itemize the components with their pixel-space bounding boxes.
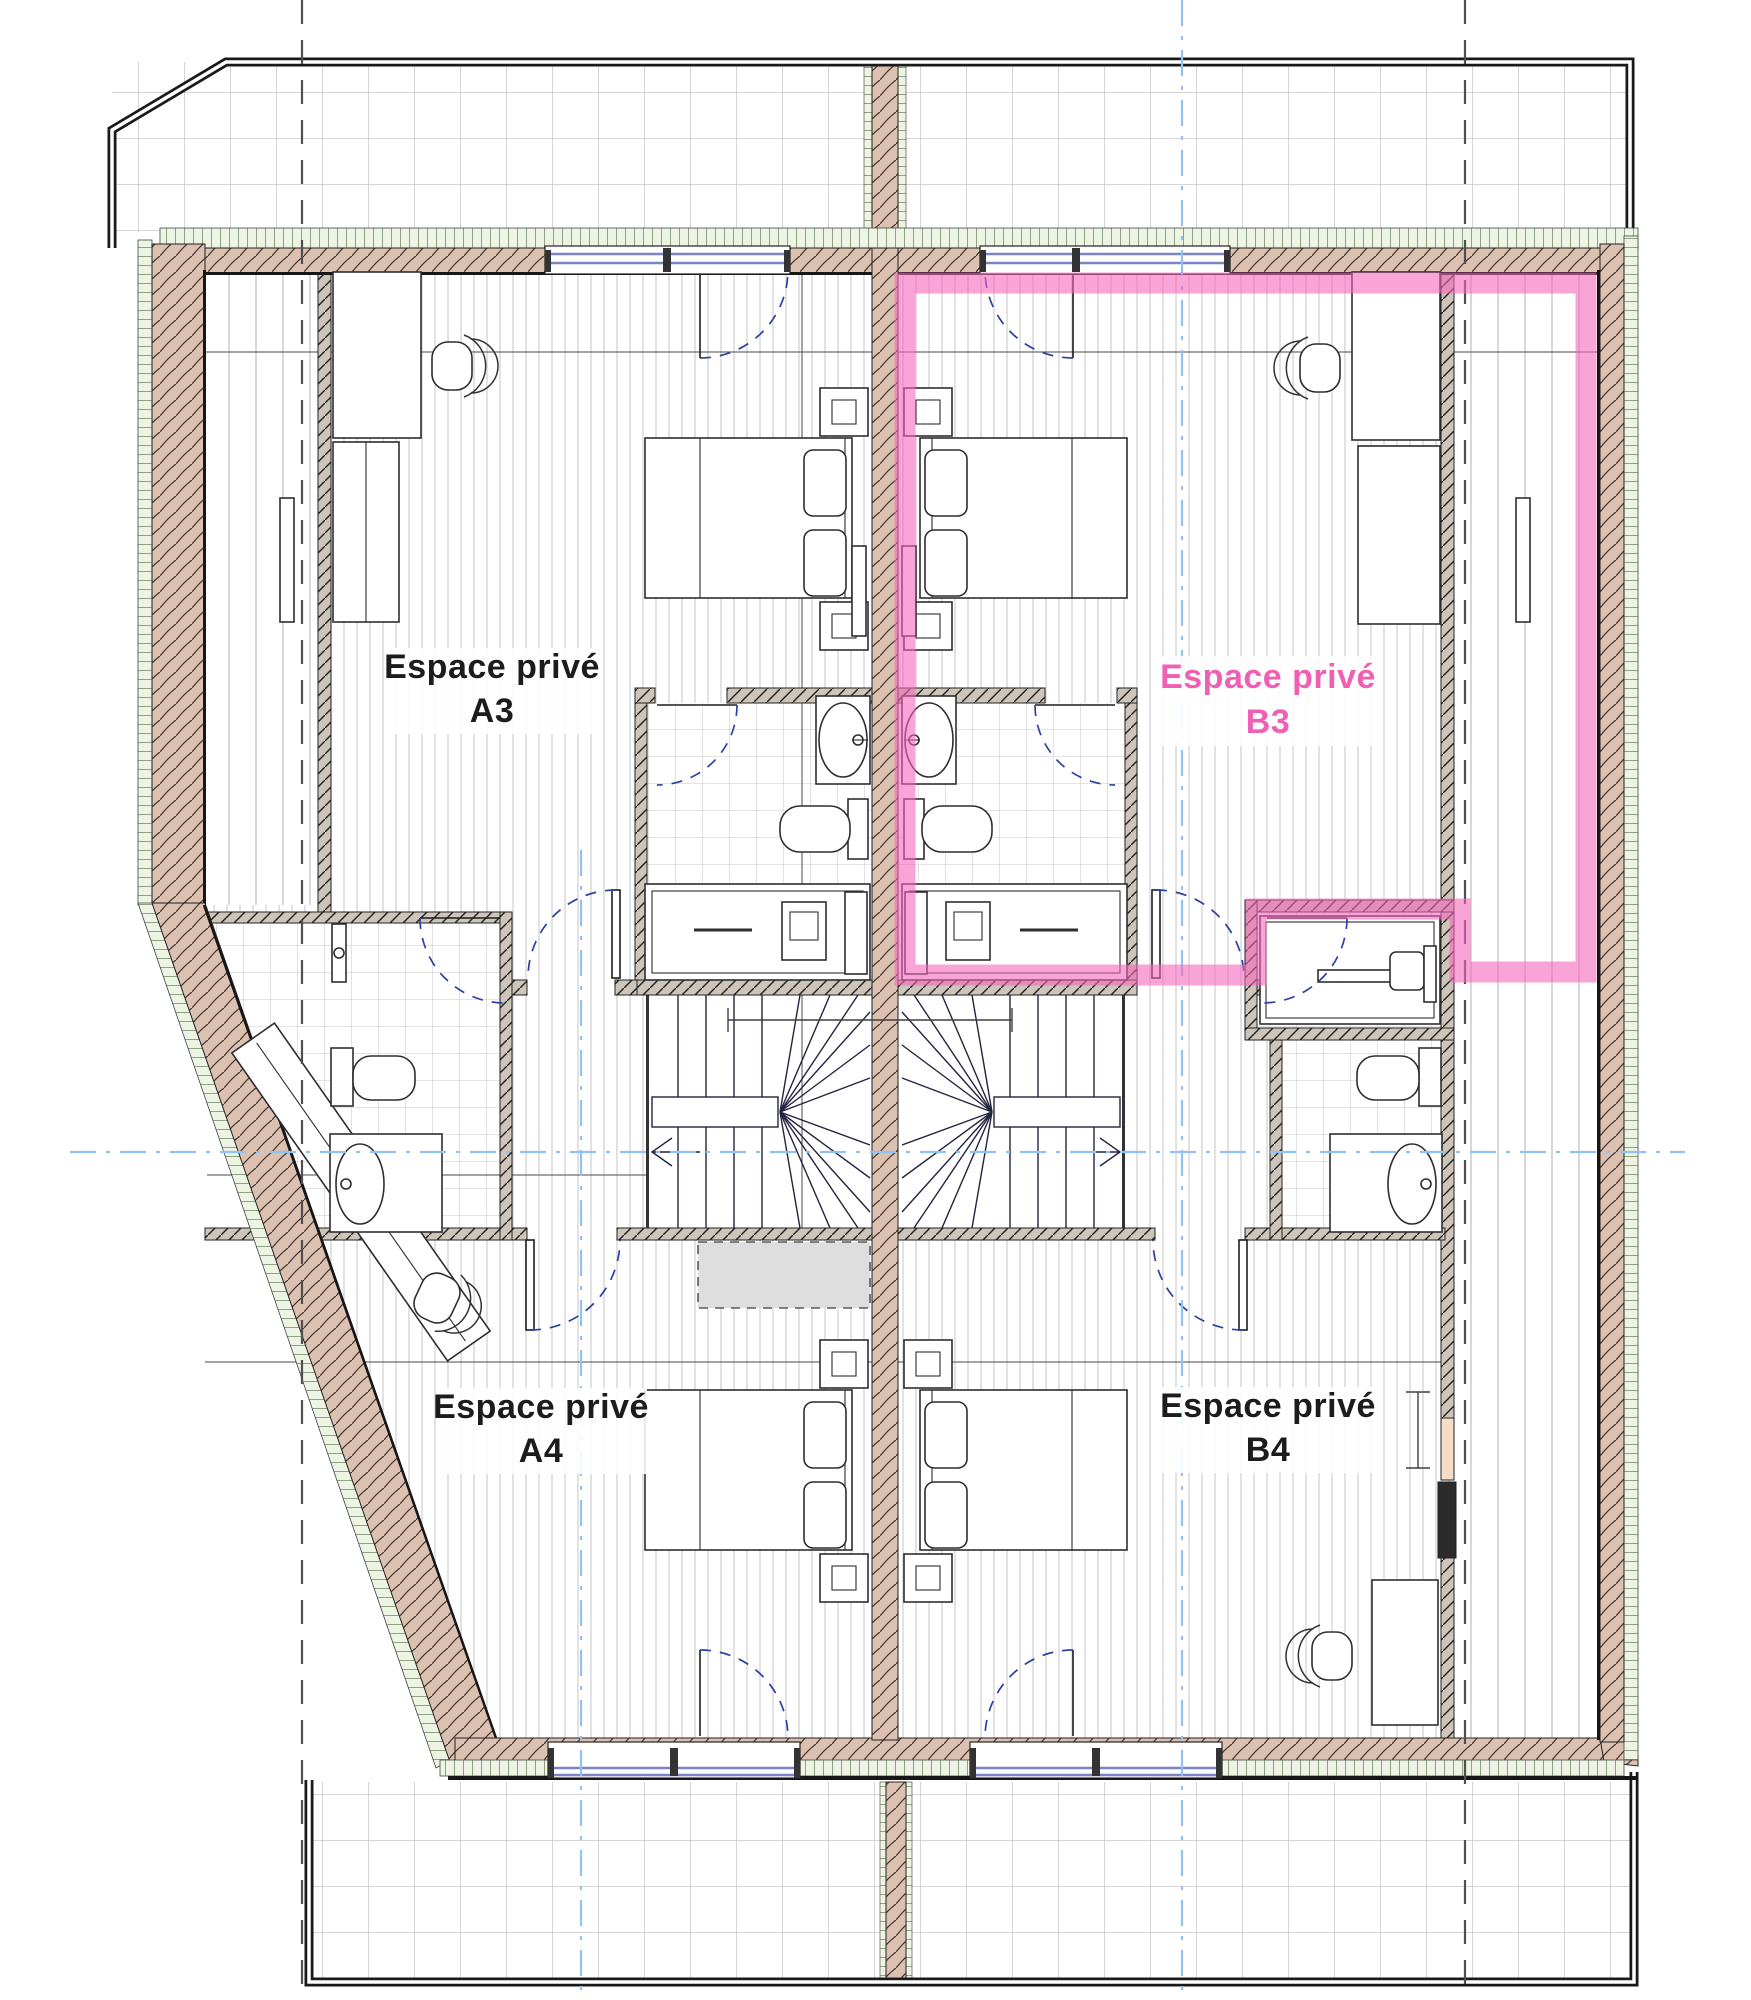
column — [845, 892, 867, 974]
wardrobe — [1358, 446, 1440, 624]
bottom-terrace — [309, 1772, 1634, 1984]
bed — [645, 438, 852, 598]
appliance — [782, 902, 826, 960]
toilet-bowl — [922, 806, 992, 852]
door-leaf — [1239, 1240, 1247, 1330]
wall-right — [1600, 244, 1624, 1742]
toilet-tank — [848, 799, 868, 859]
faucet — [341, 1179, 351, 1189]
pillow — [804, 1482, 846, 1548]
pillow — [925, 1482, 967, 1548]
pillow — [925, 450, 967, 516]
knee-wall-b-door — [1438, 1482, 1456, 1558]
floor-plan-drawing: Espace privé A3 Espace privé B3 Espace p… — [0, 0, 1751, 2000]
insulation-top — [160, 228, 1638, 250]
svg-text:Espace privé: Espace privé — [1160, 658, 1376, 696]
shower-b-fixtures — [1260, 916, 1440, 1024]
svg-text:A4: A4 — [519, 1432, 563, 1470]
radiator — [1516, 498, 1530, 622]
terrace-party-wall — [872, 62, 898, 232]
knee-wall-b — [1441, 270, 1454, 1418]
bottom-terrace-floor — [309, 1782, 1634, 1984]
top-terrace — [112, 62, 1630, 248]
radiator — [280, 498, 294, 622]
bed — [920, 438, 1127, 598]
window-b3 — [980, 246, 1230, 274]
unit-label-a3[interactable]: Espace privé A3 — [384, 648, 600, 734]
knee-wall-b-glazing — [1441, 1418, 1454, 1480]
desk — [1372, 1580, 1438, 1725]
floor-void — [698, 1242, 870, 1308]
stair-landing — [994, 1097, 1120, 1127]
nightstand — [820, 1554, 868, 1602]
unit-label-b3[interactable]: Espace privé B3 — [1160, 656, 1376, 746]
pillow — [804, 530, 846, 596]
desk — [1352, 272, 1440, 440]
svg-text:B4: B4 — [1246, 1431, 1290, 1469]
nightstand — [820, 388, 868, 436]
toilet-bowl — [1357, 1056, 1419, 1100]
pillow — [925, 1402, 967, 1468]
appliance — [946, 902, 990, 960]
nightstand — [904, 1340, 952, 1388]
window-a3 — [545, 246, 790, 274]
insulation-right — [1624, 236, 1638, 1760]
party-wall — [872, 248, 898, 1740]
bath-counter — [645, 884, 870, 980]
insulation-left — [138, 240, 152, 905]
pillow — [925, 530, 967, 596]
svg-text:Espace privé: Espace privé — [433, 1388, 649, 1426]
shower-fitting — [1424, 946, 1436, 1002]
shower-bar — [1318, 970, 1398, 982]
radiator — [852, 546, 866, 636]
knee-wall-a — [318, 270, 331, 912]
svg-text:Espace privé: Espace privé — [384, 648, 600, 686]
toilet-tank — [331, 1048, 353, 1106]
desk — [333, 272, 421, 438]
toilet-bowl — [353, 1056, 415, 1100]
pillow — [804, 1402, 846, 1468]
wall-left — [152, 244, 205, 905]
terrace-party-wall-bottom — [886, 1782, 906, 1984]
svg-text:Espace privé: Espace privé — [1160, 1387, 1376, 1425]
bed — [645, 1390, 852, 1550]
unit-label-b4[interactable]: Espace privé B4 — [1160, 1387, 1376, 1473]
bed — [920, 1390, 1127, 1550]
stair-landing — [652, 1097, 778, 1127]
window-b4 — [970, 1742, 1222, 1778]
toilet-tank — [1419, 1048, 1441, 1106]
pillow — [804, 450, 846, 516]
window-a4 — [548, 1742, 800, 1778]
nightstand — [820, 1340, 868, 1388]
svg-text:A3: A3 — [470, 692, 514, 730]
nightstand — [904, 1554, 952, 1602]
door-leaf — [526, 1240, 534, 1330]
door-leaf — [612, 890, 620, 978]
svg-text:B3: B3 — [1246, 703, 1290, 741]
shower-seat — [1390, 952, 1424, 990]
floor-plan-page: Espace privé A3 Espace privé B3 Espace p… — [0, 0, 1751, 2000]
unit-label-a4[interactable]: Espace privé A4 — [433, 1388, 649, 1474]
toilet-bowl — [780, 806, 850, 852]
faucet — [1421, 1179, 1431, 1189]
